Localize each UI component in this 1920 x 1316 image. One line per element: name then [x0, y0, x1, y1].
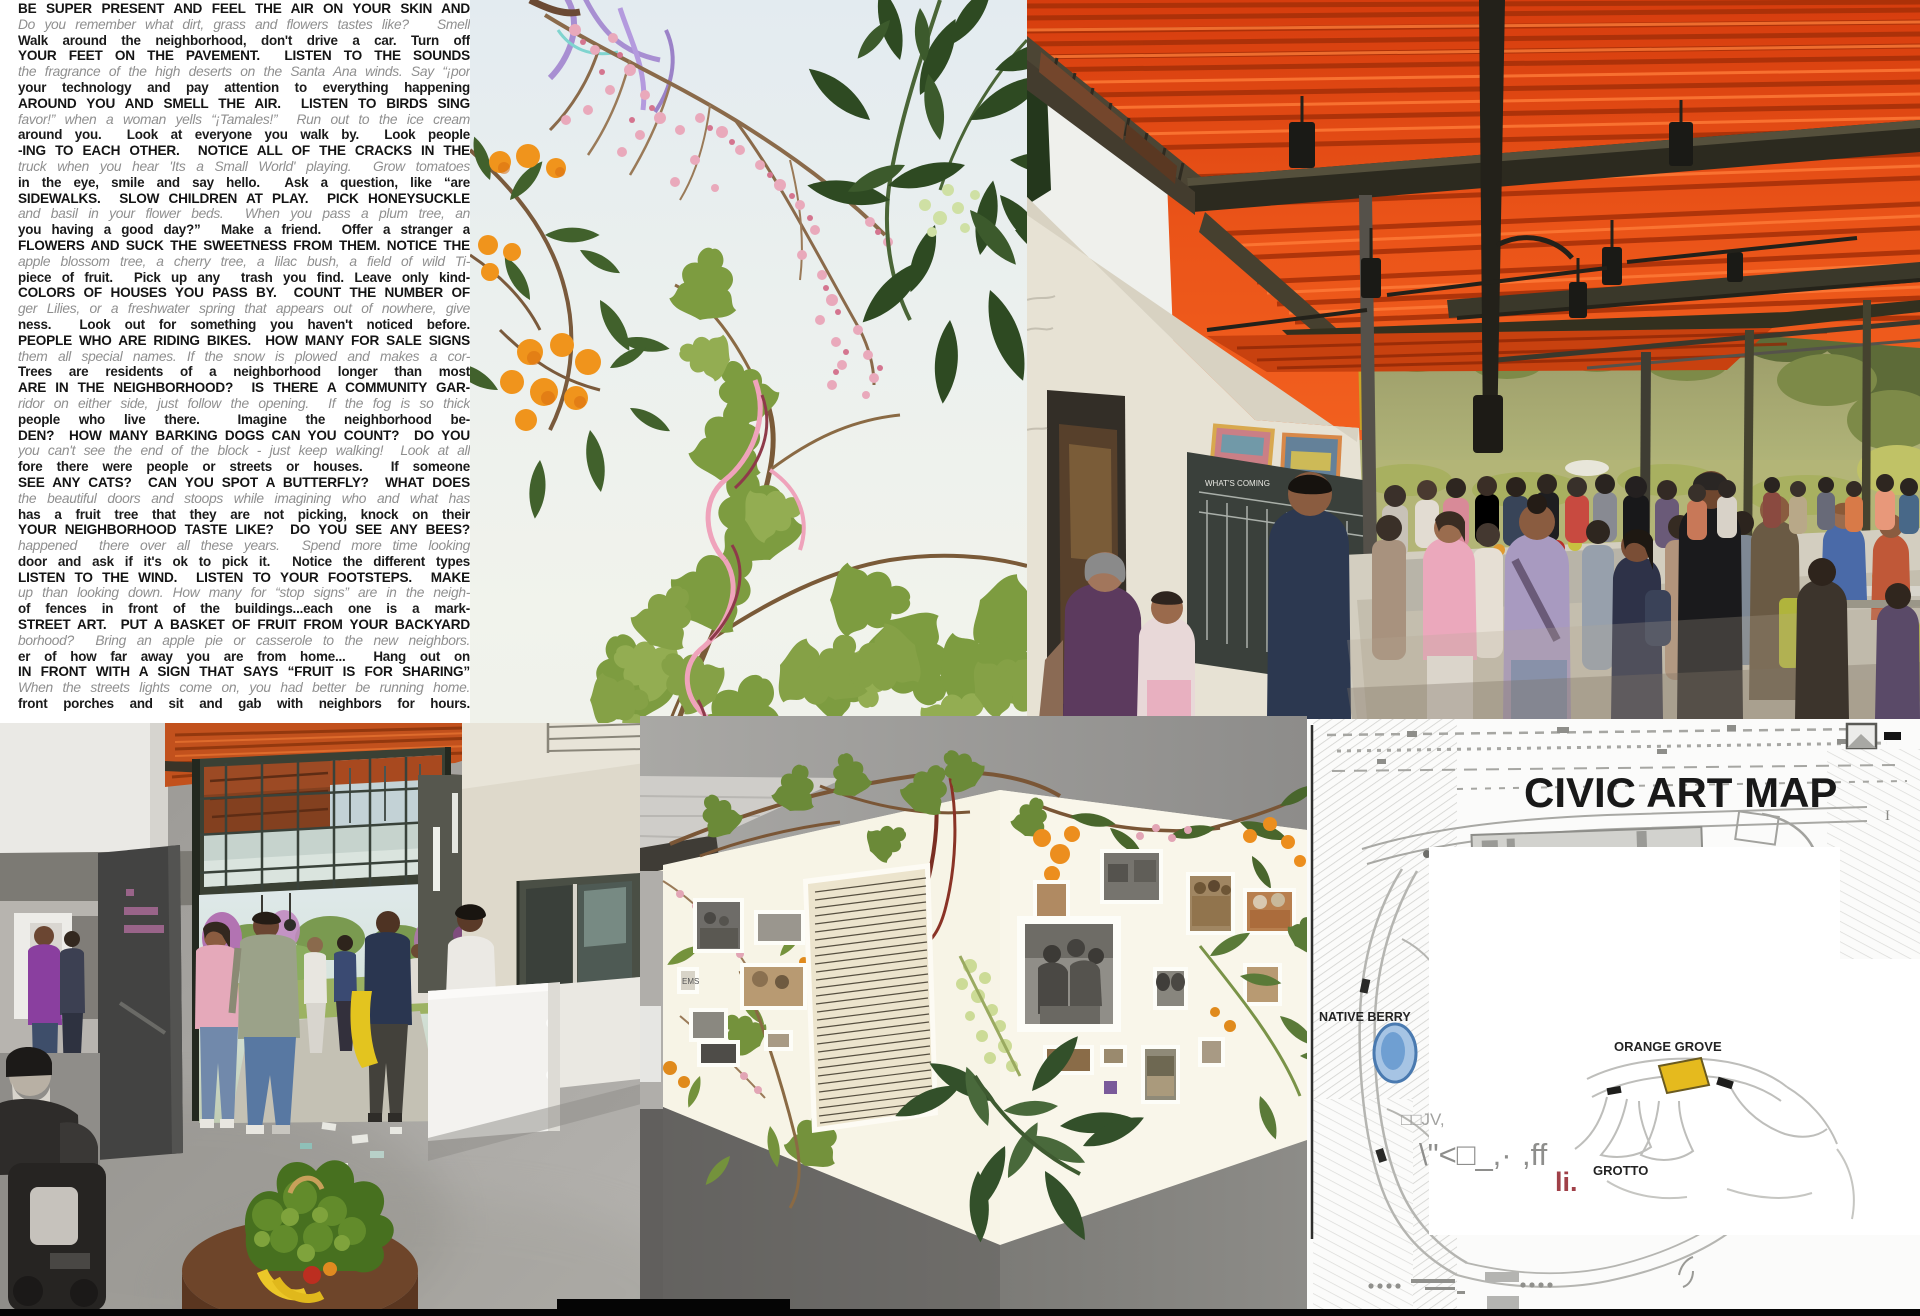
- svg-text:□□JV,: □□JV,: [1401, 1110, 1445, 1129]
- svg-text:\"<□_,· ,ff: \"<□_,· ,ff: [1419, 1137, 1548, 1172]
- svg-text:WHAT'S COMING: WHAT'S COMING: [1205, 479, 1270, 488]
- svg-text:GROTTO: GROTTO: [1593, 1163, 1648, 1178]
- svg-text:NATIVE BERRY: NATIVE BERRY: [1319, 1010, 1411, 1024]
- svg-text:li.: li.: [1555, 1167, 1578, 1197]
- svg-text:EMS: EMS: [682, 977, 699, 986]
- svg-text:I: I: [1885, 808, 1890, 824]
- svg-text:ORANGE GROVE: ORANGE GROVE: [1614, 1039, 1722, 1054]
